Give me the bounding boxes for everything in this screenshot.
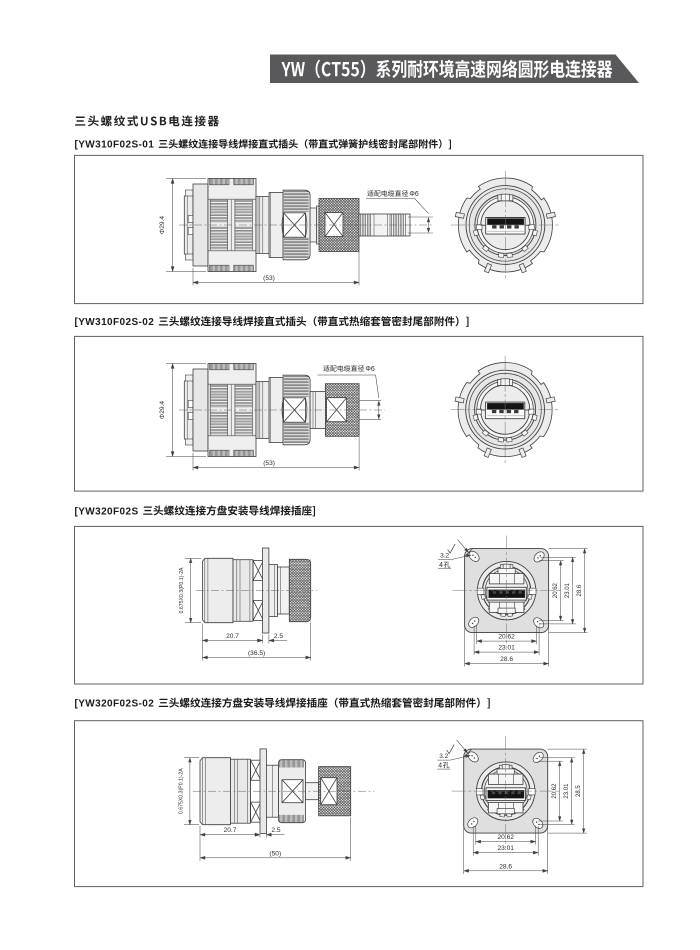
svg-text:4: 4: [438, 763, 442, 770]
svg-text:Φ29.4: Φ29.4: [159, 401, 166, 419]
svg-text:28.6: 28.6: [577, 584, 583, 596]
svg-text:0.675X0.3(P0.1)-2A: 0.675X0.3(P0.1)-2A: [179, 567, 185, 613]
svg-text:(36.5): (36.5): [248, 650, 265, 657]
svg-text:(53): (53): [263, 460, 275, 467]
svg-text:28.5: 28.5: [576, 785, 582, 797]
svg-text:[YW310F02S-02: [YW310F02S-02: [75, 317, 155, 328]
svg-text:4: 4: [439, 562, 443, 569]
svg-text:(53): (53): [263, 275, 275, 282]
svg-text:20.62: 20.62: [498, 634, 515, 641]
svg-text:2.5: 2.5: [271, 827, 280, 834]
svg-text:28.6: 28.6: [500, 656, 513, 663]
svg-text:Φ6: Φ6: [409, 191, 418, 198]
svg-text:[YW320F02S: [YW320F02S: [75, 507, 139, 518]
svg-text:0.675X0.3(P0.1)-2A: 0.675X0.3(P0.1)-2A: [178, 768, 184, 814]
svg-text:28.6: 28.6: [499, 863, 512, 870]
svg-text:3.2: 3.2: [439, 753, 448, 760]
svg-text:20.7: 20.7: [226, 633, 239, 640]
svg-text:[YW320F02S-02: [YW320F02S-02: [75, 699, 155, 710]
svg-text:20.62: 20.62: [497, 834, 514, 841]
svg-text:Φ29.4: Φ29.4: [159, 216, 166, 234]
svg-text:23.01: 23.01: [498, 645, 515, 652]
svg-text:Φ6: Φ6: [365, 366, 374, 373]
svg-text:20.62: 20.62: [553, 582, 559, 598]
svg-text:[YW310F02S-01: [YW310F02S-01: [75, 140, 155, 151]
svg-text:23.01: 23.01: [497, 845, 514, 852]
svg-text:2.5: 2.5: [274, 633, 283, 640]
svg-text:23.01: 23.01: [564, 783, 570, 799]
svg-text:(50): (50): [269, 850, 281, 857]
svg-text:20.7: 20.7: [224, 827, 237, 834]
svg-text:3.2: 3.2: [440, 553, 449, 560]
svg-text:23.01: 23.01: [565, 582, 571, 598]
svg-text:20.62: 20.62: [552, 783, 558, 799]
